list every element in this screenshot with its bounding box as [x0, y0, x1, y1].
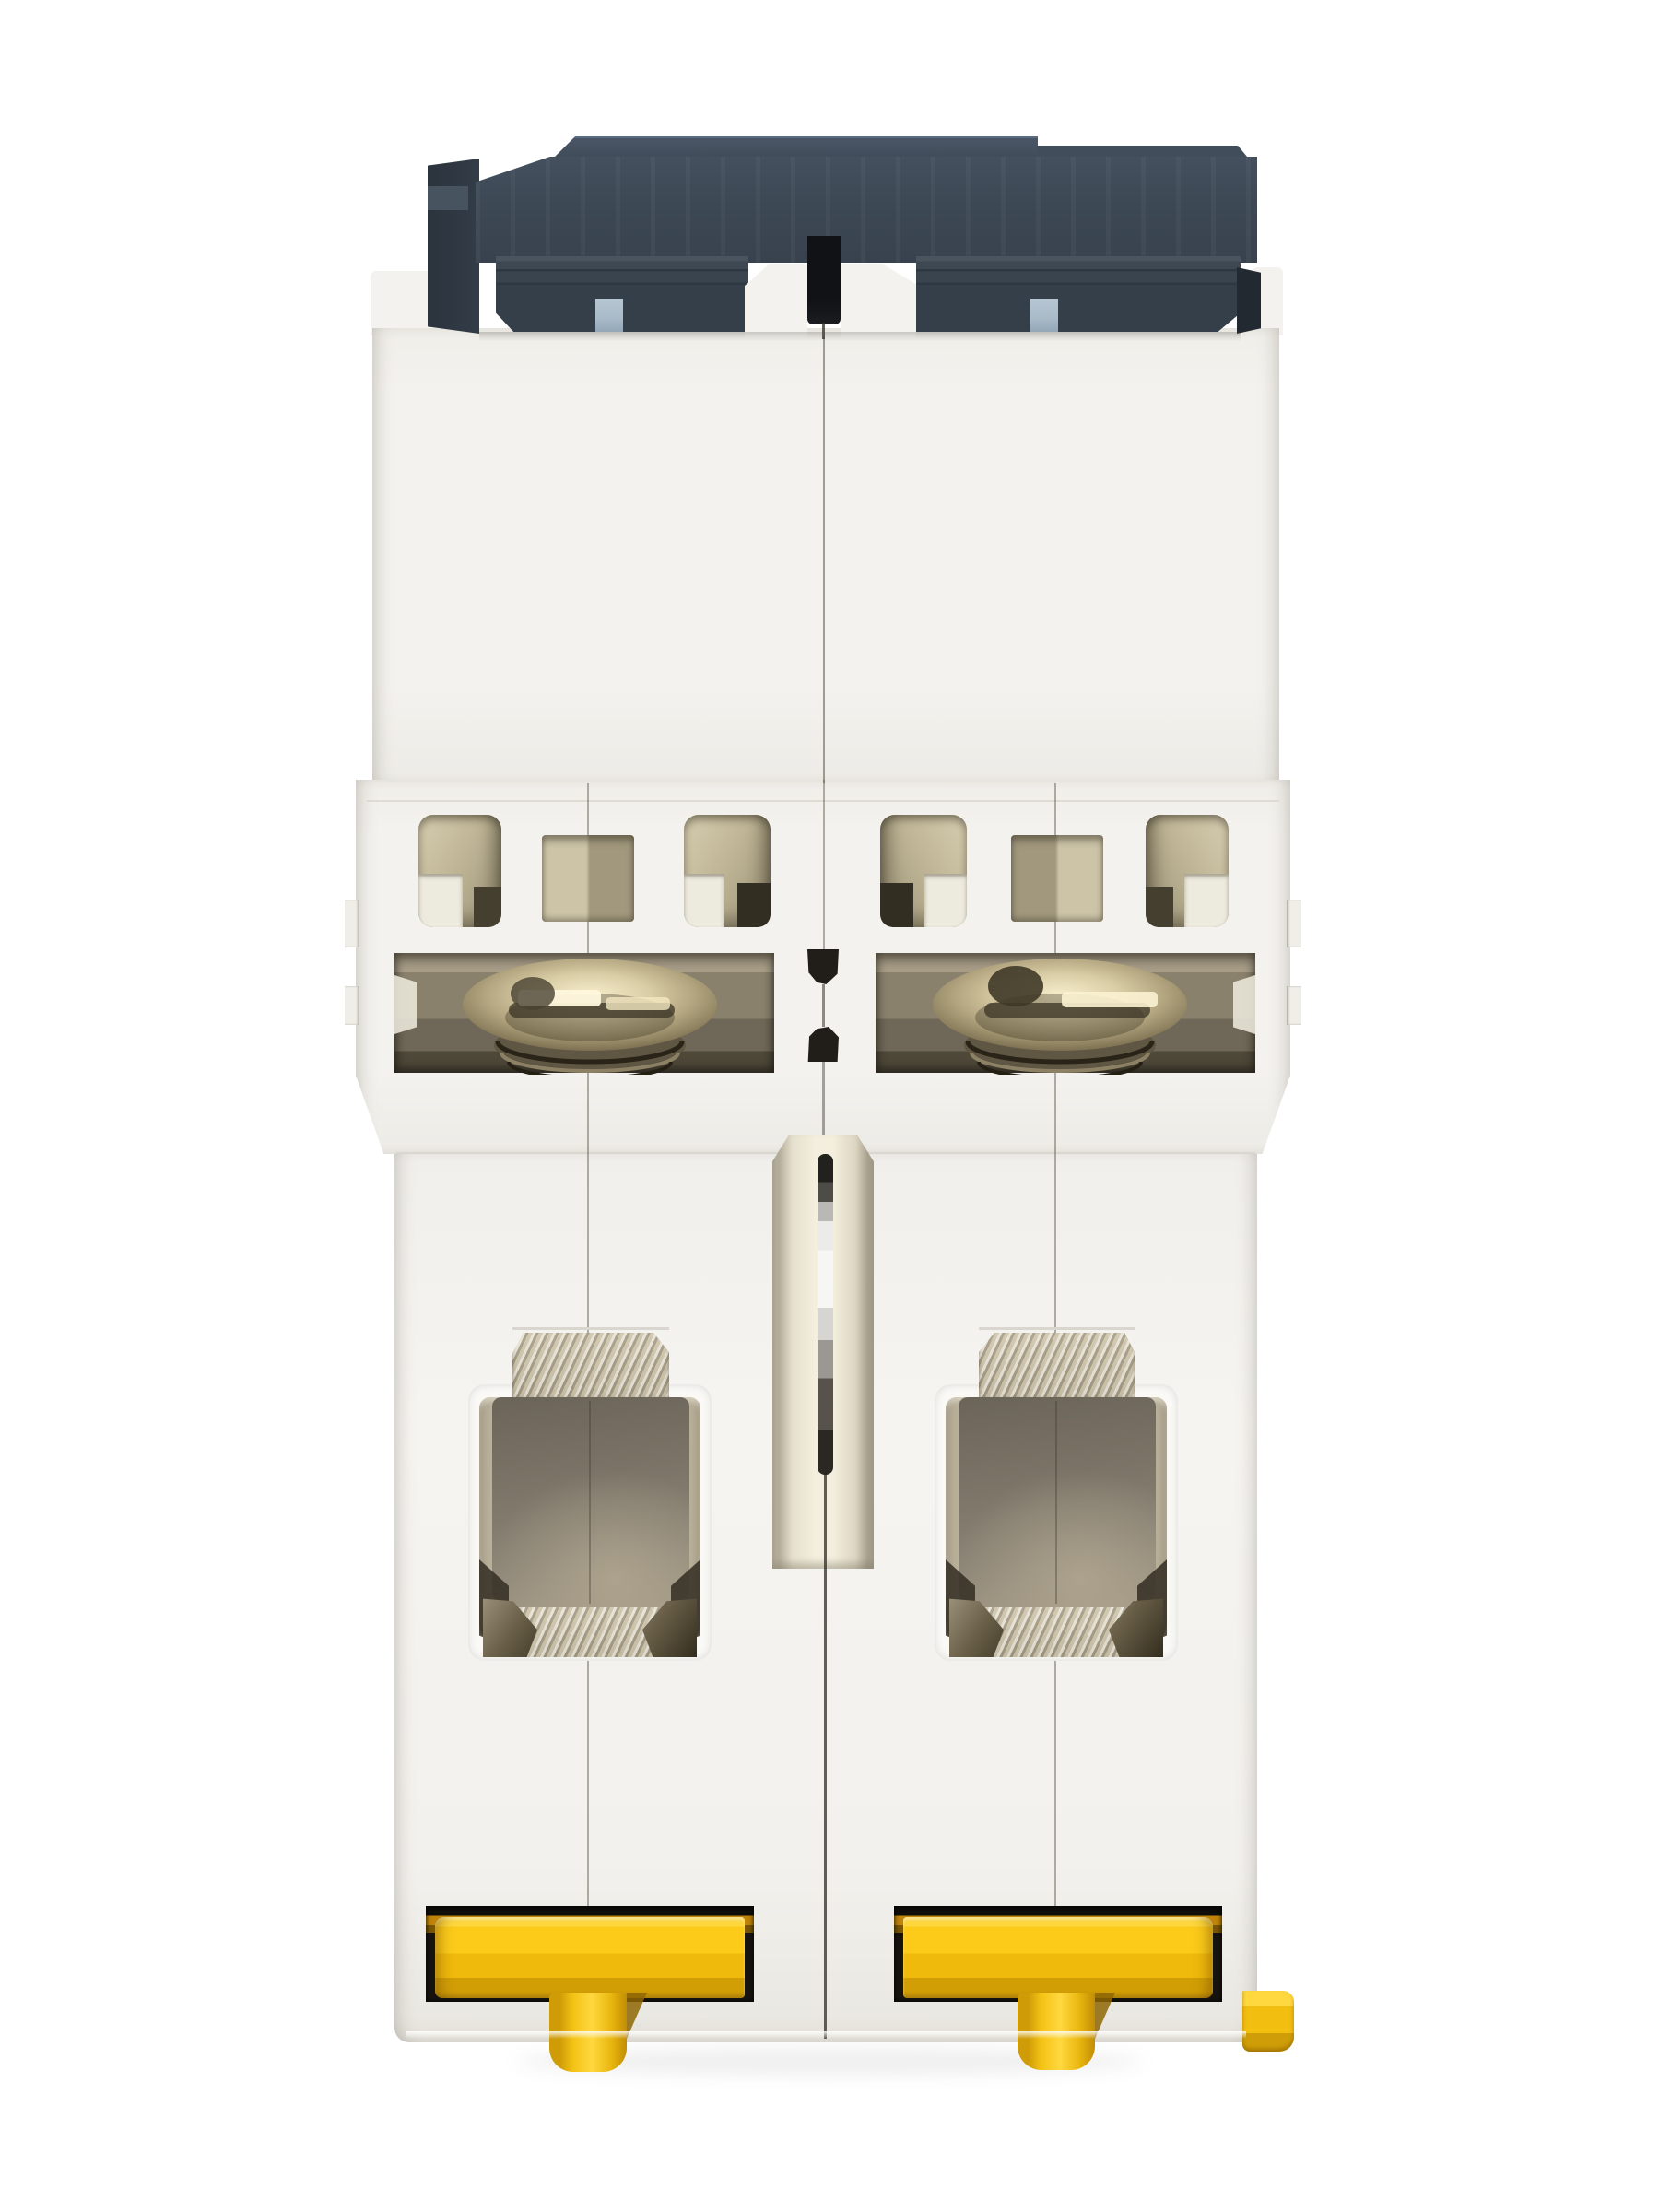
product-photo [0, 0, 1659, 2212]
terminal-cavity-left-inner [492, 1397, 689, 1618]
edge-notch-right-1 [1287, 900, 1301, 947]
vent-a-dark-chip [474, 887, 501, 927]
vent-a2-inner-step [1184, 874, 1229, 927]
edge-notch-right-2 [1287, 986, 1301, 1025]
din-clip-right [903, 1917, 1213, 1998]
cap-slot-right [1237, 267, 1261, 334]
blue-tab-right [1030, 299, 1058, 332]
bottom-edge-highlight [406, 2031, 1246, 2039]
center-seam-upper [823, 337, 825, 783]
terminal-cavity-right-seam [1055, 1401, 1057, 1604]
terminal-cavity-right-inner [959, 1397, 1156, 1618]
terminal-tab-right [979, 1333, 1135, 1403]
cap-gap-wedge-right [841, 264, 916, 337]
pin-tail [824, 1473, 827, 2039]
vent-a-inner-step [418, 874, 463, 927]
shoulder-left [371, 271, 435, 335]
vent-c-inner-step [684, 874, 724, 927]
tab-slot-right [979, 1327, 1135, 1330]
center-seam-middle [823, 780, 825, 951]
terminal-cavity-left-seam [589, 1401, 591, 1604]
blue-tab-left [595, 299, 623, 332]
vent-a2-dark-chip [1146, 887, 1173, 927]
tab-slot-left [512, 1327, 669, 1330]
pole-pin [818, 1154, 833, 1475]
cap-band-right [916, 256, 1241, 332]
vent-cutout-b [542, 835, 634, 922]
recess-right-sliver [1233, 975, 1255, 1034]
cap-side-step [428, 186, 468, 210]
terminal-screw-right [924, 949, 1196, 1075]
vent-cutout-b2 [1011, 835, 1103, 922]
center-hairline-mid [822, 984, 825, 1027]
cap-gap-wedge-left [745, 264, 807, 337]
din-clip-release-right [1242, 1991, 1294, 2052]
center-hairline-low [822, 1062, 825, 1137]
vent-c-dark-chip [737, 883, 771, 927]
vent-c2-dark-chip [880, 883, 913, 927]
housing-upper [372, 328, 1279, 783]
terminal-screw-left [453, 949, 726, 1075]
terminal-tab-left [512, 1333, 669, 1403]
vent-c2-inner-step [924, 874, 967, 927]
cap-face [476, 157, 1257, 263]
edge-notch-left-1 [345, 900, 359, 947]
edge-notch-left-2 [345, 986, 359, 1025]
recess-left-sliver [394, 975, 417, 1034]
cap-side-left [428, 159, 479, 334]
cap-center-gap [807, 236, 841, 324]
din-clip-left [435, 1917, 745, 1998]
cap-under-shadow [479, 332, 1241, 341]
